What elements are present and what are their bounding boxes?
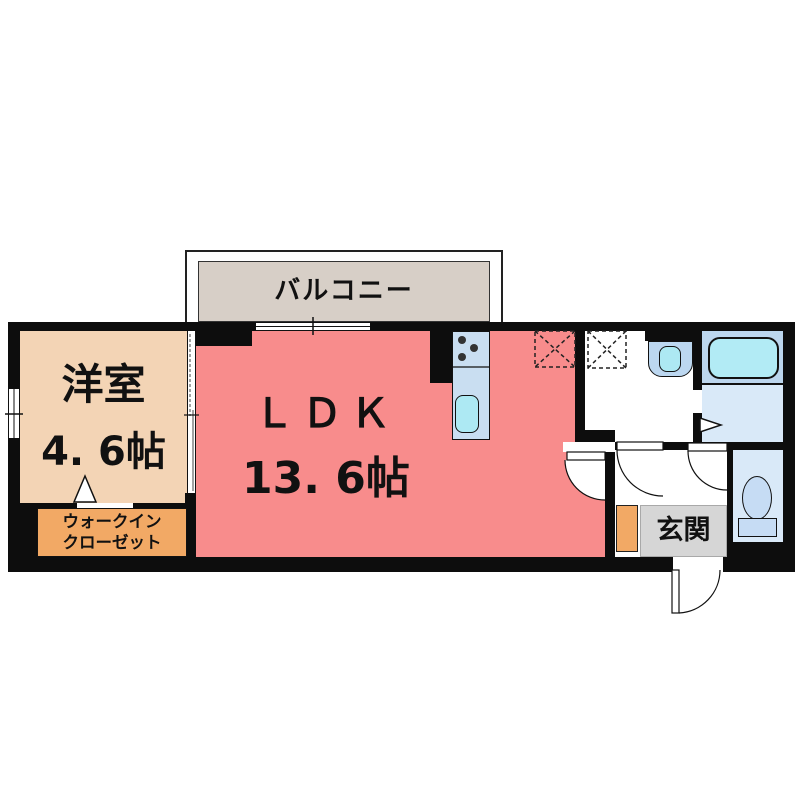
ldk-doorway-opening xyxy=(563,442,615,452)
wall-bath-left-upper xyxy=(693,331,702,390)
toilet-bowl-icon xyxy=(742,476,772,520)
room-ldk xyxy=(196,331,575,557)
closet-label-line1: ウォークイン xyxy=(63,512,162,533)
western-room-label: 洋室 xyxy=(20,360,187,410)
ldk-size: 13. 6帖 xyxy=(196,452,456,504)
toilet-tank-icon xyxy=(738,518,777,537)
hallway xyxy=(615,450,727,505)
wall-kitchen-stub xyxy=(430,331,453,383)
closet-label-line2: クローゼット xyxy=(63,533,162,554)
wall-bath-left-lower xyxy=(693,413,702,442)
wall-hall-ldk xyxy=(605,452,615,557)
sliding-window-top-icon xyxy=(256,322,370,331)
room-ldk-extension xyxy=(575,450,605,557)
ldk-label: ＬＤＫ xyxy=(196,390,456,438)
kitchen-sink-icon xyxy=(455,395,479,433)
wall-above-basin xyxy=(645,331,693,341)
washbasin-bowl-icon xyxy=(659,346,681,372)
shoe-cabinet xyxy=(616,505,638,552)
wall-left xyxy=(8,322,20,572)
closet-label: ウォークイン クローゼット xyxy=(37,508,187,557)
bathroom-floor xyxy=(702,385,783,442)
wall-toilet-left xyxy=(727,442,733,542)
room-western xyxy=(20,331,187,503)
wall-ldk-corner xyxy=(196,331,252,346)
sliding-door-partition-icon xyxy=(187,331,196,493)
genkan-label: 玄関 xyxy=(640,505,727,557)
wall-westroom-corner xyxy=(20,503,37,557)
balcony-label: バルコニー xyxy=(198,261,490,322)
bathtub-icon xyxy=(708,337,779,379)
entrance-opening xyxy=(673,557,723,572)
entrance-door-icon xyxy=(672,570,720,613)
wall-below-toilet xyxy=(727,542,795,562)
wall-door-chunk xyxy=(577,430,615,442)
western-room-size: 4. 6帖 xyxy=(20,428,187,476)
wall-top xyxy=(8,322,795,331)
sliding-window-left-icon xyxy=(8,389,20,438)
floorplan-canvas: バルコニー ウォークイン クローゼット 玄関 xyxy=(0,0,800,800)
wall-washroom-left xyxy=(575,331,585,442)
